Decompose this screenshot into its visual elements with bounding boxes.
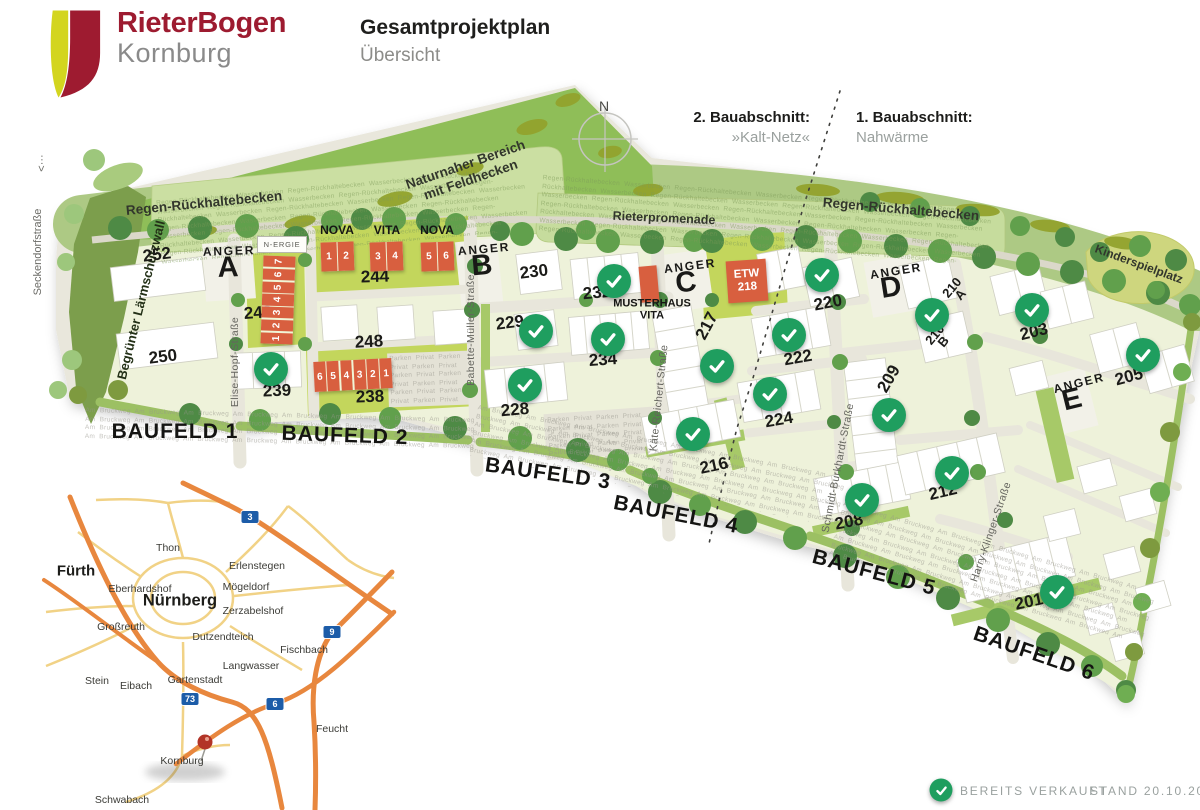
lot-number: 230 bbox=[519, 260, 549, 282]
unit-number: 1 bbox=[271, 335, 282, 341]
lot-number: 252 bbox=[142, 243, 172, 265]
vita-label: VITA bbox=[374, 223, 400, 237]
city-label-großreuth: Großreuth bbox=[97, 621, 145, 633]
anger-C-letter: C bbox=[674, 265, 699, 300]
lot-number-suffix: A bbox=[953, 287, 967, 301]
unit-5: 5 bbox=[421, 242, 438, 272]
unit-number: 3 bbox=[272, 310, 283, 316]
sold-check-203 bbox=[1015, 293, 1049, 327]
lot-label-248: 248 bbox=[354, 331, 383, 352]
sold-check-210A bbox=[915, 298, 949, 332]
street-elise-hopf: Elise-Hopf-Straße bbox=[229, 317, 241, 407]
site-plan-basemap bbox=[0, 0, 1200, 810]
city-label-mögeldorf: Mögeldorf bbox=[223, 581, 270, 593]
road-badge-3: 3 bbox=[242, 511, 259, 523]
unit-number: 5 bbox=[330, 370, 336, 381]
gesamtprojektplan-canvas: RieterBogen Kornburg Gesamtprojektplan Ü… bbox=[0, 0, 1200, 810]
sold-check-209 bbox=[872, 398, 906, 432]
city-label-nürnberg: Nürnberg bbox=[143, 592, 217, 611]
unit-2: 2 bbox=[366, 359, 379, 390]
unit-number: 1 bbox=[383, 368, 389, 379]
legend-sold-check-icon bbox=[930, 779, 953, 802]
inset-highways bbox=[44, 483, 394, 810]
seckendorf-arrow: <··· bbox=[36, 154, 48, 171]
logo-text: RieterBogen Kornburg bbox=[117, 8, 286, 100]
inset-map bbox=[44, 483, 394, 810]
sold-check-205 bbox=[1126, 338, 1160, 372]
unit-number: 2 bbox=[272, 323, 283, 329]
lot-label-252: 252 bbox=[142, 243, 173, 266]
legend-stand-label: STAND 20.10.2025 bbox=[1090, 784, 1200, 798]
page-title: Gesamtprojektplan bbox=[360, 16, 550, 40]
city-label-stein: Stein bbox=[85, 675, 109, 687]
sold-check-217 bbox=[700, 349, 734, 383]
unit-number: 3 bbox=[375, 251, 381, 262]
unit-number: 5 bbox=[426, 251, 432, 262]
anger-A-letter: A bbox=[217, 251, 239, 285]
unit-number: 6 bbox=[273, 271, 284, 277]
nova-right-building: 56 bbox=[421, 241, 455, 271]
unit-number: 3 bbox=[357, 369, 363, 380]
sold-check-229 bbox=[519, 314, 553, 348]
city-label-fischbach: Fischbach bbox=[280, 644, 328, 656]
unit-4: 4 bbox=[340, 360, 353, 391]
sold-check-212 bbox=[935, 456, 969, 490]
etw-218-building: ETW 218 bbox=[726, 259, 769, 304]
unit-number: 2 bbox=[343, 251, 349, 262]
city-label-schwabach: Schwabach bbox=[95, 794, 149, 806]
sold-check-222 bbox=[772, 318, 806, 352]
lot-label-250: 250 bbox=[148, 345, 179, 368]
unit-number: 4 bbox=[272, 297, 283, 303]
unit-number: 6 bbox=[317, 371, 323, 382]
unit-4: 4 bbox=[262, 294, 294, 306]
nova-left-building: 12 bbox=[321, 241, 355, 271]
sold-check-228 bbox=[508, 368, 542, 402]
road-badge-73: 73 bbox=[182, 693, 199, 705]
musterhaus-label: MUSTERHAUS VITA bbox=[613, 298, 691, 321]
logo-title: RieterBogen bbox=[117, 8, 286, 38]
city-label-eibach: Eibach bbox=[120, 680, 152, 692]
lot-number: 248 bbox=[354, 331, 383, 351]
city-label-feucht: Feucht bbox=[316, 723, 348, 735]
sold-check-201 bbox=[1040, 575, 1074, 609]
street-babette-mueller: Babette-Müller-Straße bbox=[465, 274, 477, 386]
phase-1-label: 1. Bauabschnitt: bbox=[856, 108, 973, 128]
unit-number: 1 bbox=[326, 251, 332, 262]
document-title-block: Gesamtprojektplan Übersicht bbox=[360, 16, 550, 67]
phase-2-label-block: 2. Bauabschnitt: »Kalt-Netz« bbox=[648, 108, 810, 147]
unit-5: 5 bbox=[262, 281, 294, 293]
phase-1-value: Nahwärme bbox=[856, 128, 973, 148]
sold-check-239 bbox=[254, 352, 288, 386]
logo: RieterBogen Kornburg bbox=[45, 8, 286, 100]
seckendorfstrasse-label: Seckendorfstraße bbox=[32, 209, 44, 296]
city-label-kornburg: Kornburg bbox=[160, 755, 203, 767]
unit-7: 7 bbox=[263, 255, 295, 267]
n-ergie-station: N-ERGIE bbox=[257, 236, 307, 253]
road-badge-6: 6 bbox=[267, 698, 284, 710]
city-label-fürth: Fürth bbox=[57, 563, 95, 580]
unit-3: 3 bbox=[353, 359, 366, 390]
unit-number: 6 bbox=[443, 251, 449, 262]
unit-5: 5 bbox=[327, 361, 340, 392]
unit-4: 4 bbox=[387, 241, 404, 271]
rowhouse-240: 7654321 bbox=[260, 255, 295, 344]
vita-building: 34 bbox=[370, 241, 404, 271]
sold-check-216 bbox=[676, 417, 710, 451]
sold-check-220 bbox=[805, 258, 839, 292]
logo-subtitle: Kornburg bbox=[117, 38, 286, 69]
unit-1: 1 bbox=[260, 332, 292, 344]
city-label-langwasser: Langwasser bbox=[223, 660, 280, 672]
lot-label-230: 230 bbox=[519, 260, 550, 283]
city-label-erlenstegen: Erlenstegen bbox=[229, 560, 285, 572]
sold-check-208 bbox=[845, 483, 879, 517]
lot-number: 220 bbox=[812, 290, 843, 314]
sold-check-234 bbox=[591, 322, 625, 356]
unit-6: 6 bbox=[438, 241, 455, 271]
baufeld-2-label: BAUFELD 2 bbox=[281, 422, 409, 450]
musterhaus-line1: MUSTERHAUS bbox=[613, 298, 691, 310]
city-label-dutzendteich: Dutzendteich bbox=[192, 631, 253, 643]
nova-left-label: NOVA bbox=[320, 223, 354, 237]
lot-number: 224 bbox=[763, 408, 794, 432]
unit-3: 3 bbox=[370, 242, 387, 272]
lot-number-suffix: B bbox=[936, 334, 950, 348]
logo-shield-icon bbox=[45, 8, 103, 100]
unit-number: 2 bbox=[370, 368, 376, 379]
lot-number: 250 bbox=[148, 345, 178, 367]
city-label-gartenstadt: Gartenstadt bbox=[168, 674, 223, 686]
phase-1-label-block: 1. Bauabschnitt: Nahwärme bbox=[856, 108, 973, 147]
city-label-zerzabelshof: Zerzabelshof bbox=[223, 605, 284, 617]
unit-3: 3 bbox=[261, 307, 293, 319]
page-subtitle: Übersicht bbox=[360, 45, 550, 67]
musterhaus-line2: VITA bbox=[613, 310, 691, 322]
unit-number: 4 bbox=[343, 370, 349, 381]
unit-number: 7 bbox=[274, 259, 285, 265]
lot-number: 228 bbox=[500, 399, 530, 420]
legend-sold-label: BEREITS VERKAUFT bbox=[960, 784, 1108, 798]
unit-number: 5 bbox=[273, 284, 284, 290]
nova-right-label: NOVA bbox=[420, 223, 454, 237]
phase-2-label: 2. Bauabschnitt: bbox=[648, 108, 810, 128]
baufeld-1-label: BAUFELD 1 bbox=[112, 420, 239, 444]
unit-1: 1 bbox=[321, 242, 338, 272]
sold-check-224 bbox=[753, 377, 787, 411]
unit-6: 6 bbox=[263, 268, 295, 280]
phase-2-value: »Kalt-Netz« bbox=[648, 128, 810, 148]
anger-B-letter: B bbox=[470, 249, 494, 284]
sold-check-232 bbox=[597, 264, 631, 298]
etw-line2: 218 bbox=[737, 280, 757, 295]
unit-2: 2 bbox=[338, 241, 355, 271]
road-badge-9: 9 bbox=[324, 626, 341, 638]
unit-6: 6 bbox=[313, 361, 326, 392]
lot-label-228: 228 bbox=[500, 399, 530, 421]
unit-number: 4 bbox=[392, 251, 398, 262]
rowhouse-238: 654321 bbox=[313, 358, 392, 392]
inset-minor-roads bbox=[46, 499, 394, 802]
city-label-thon: Thon bbox=[156, 542, 180, 554]
unit-2: 2 bbox=[261, 319, 293, 331]
unit-1: 1 bbox=[379, 358, 392, 389]
compass-north-label: N bbox=[599, 98, 609, 114]
